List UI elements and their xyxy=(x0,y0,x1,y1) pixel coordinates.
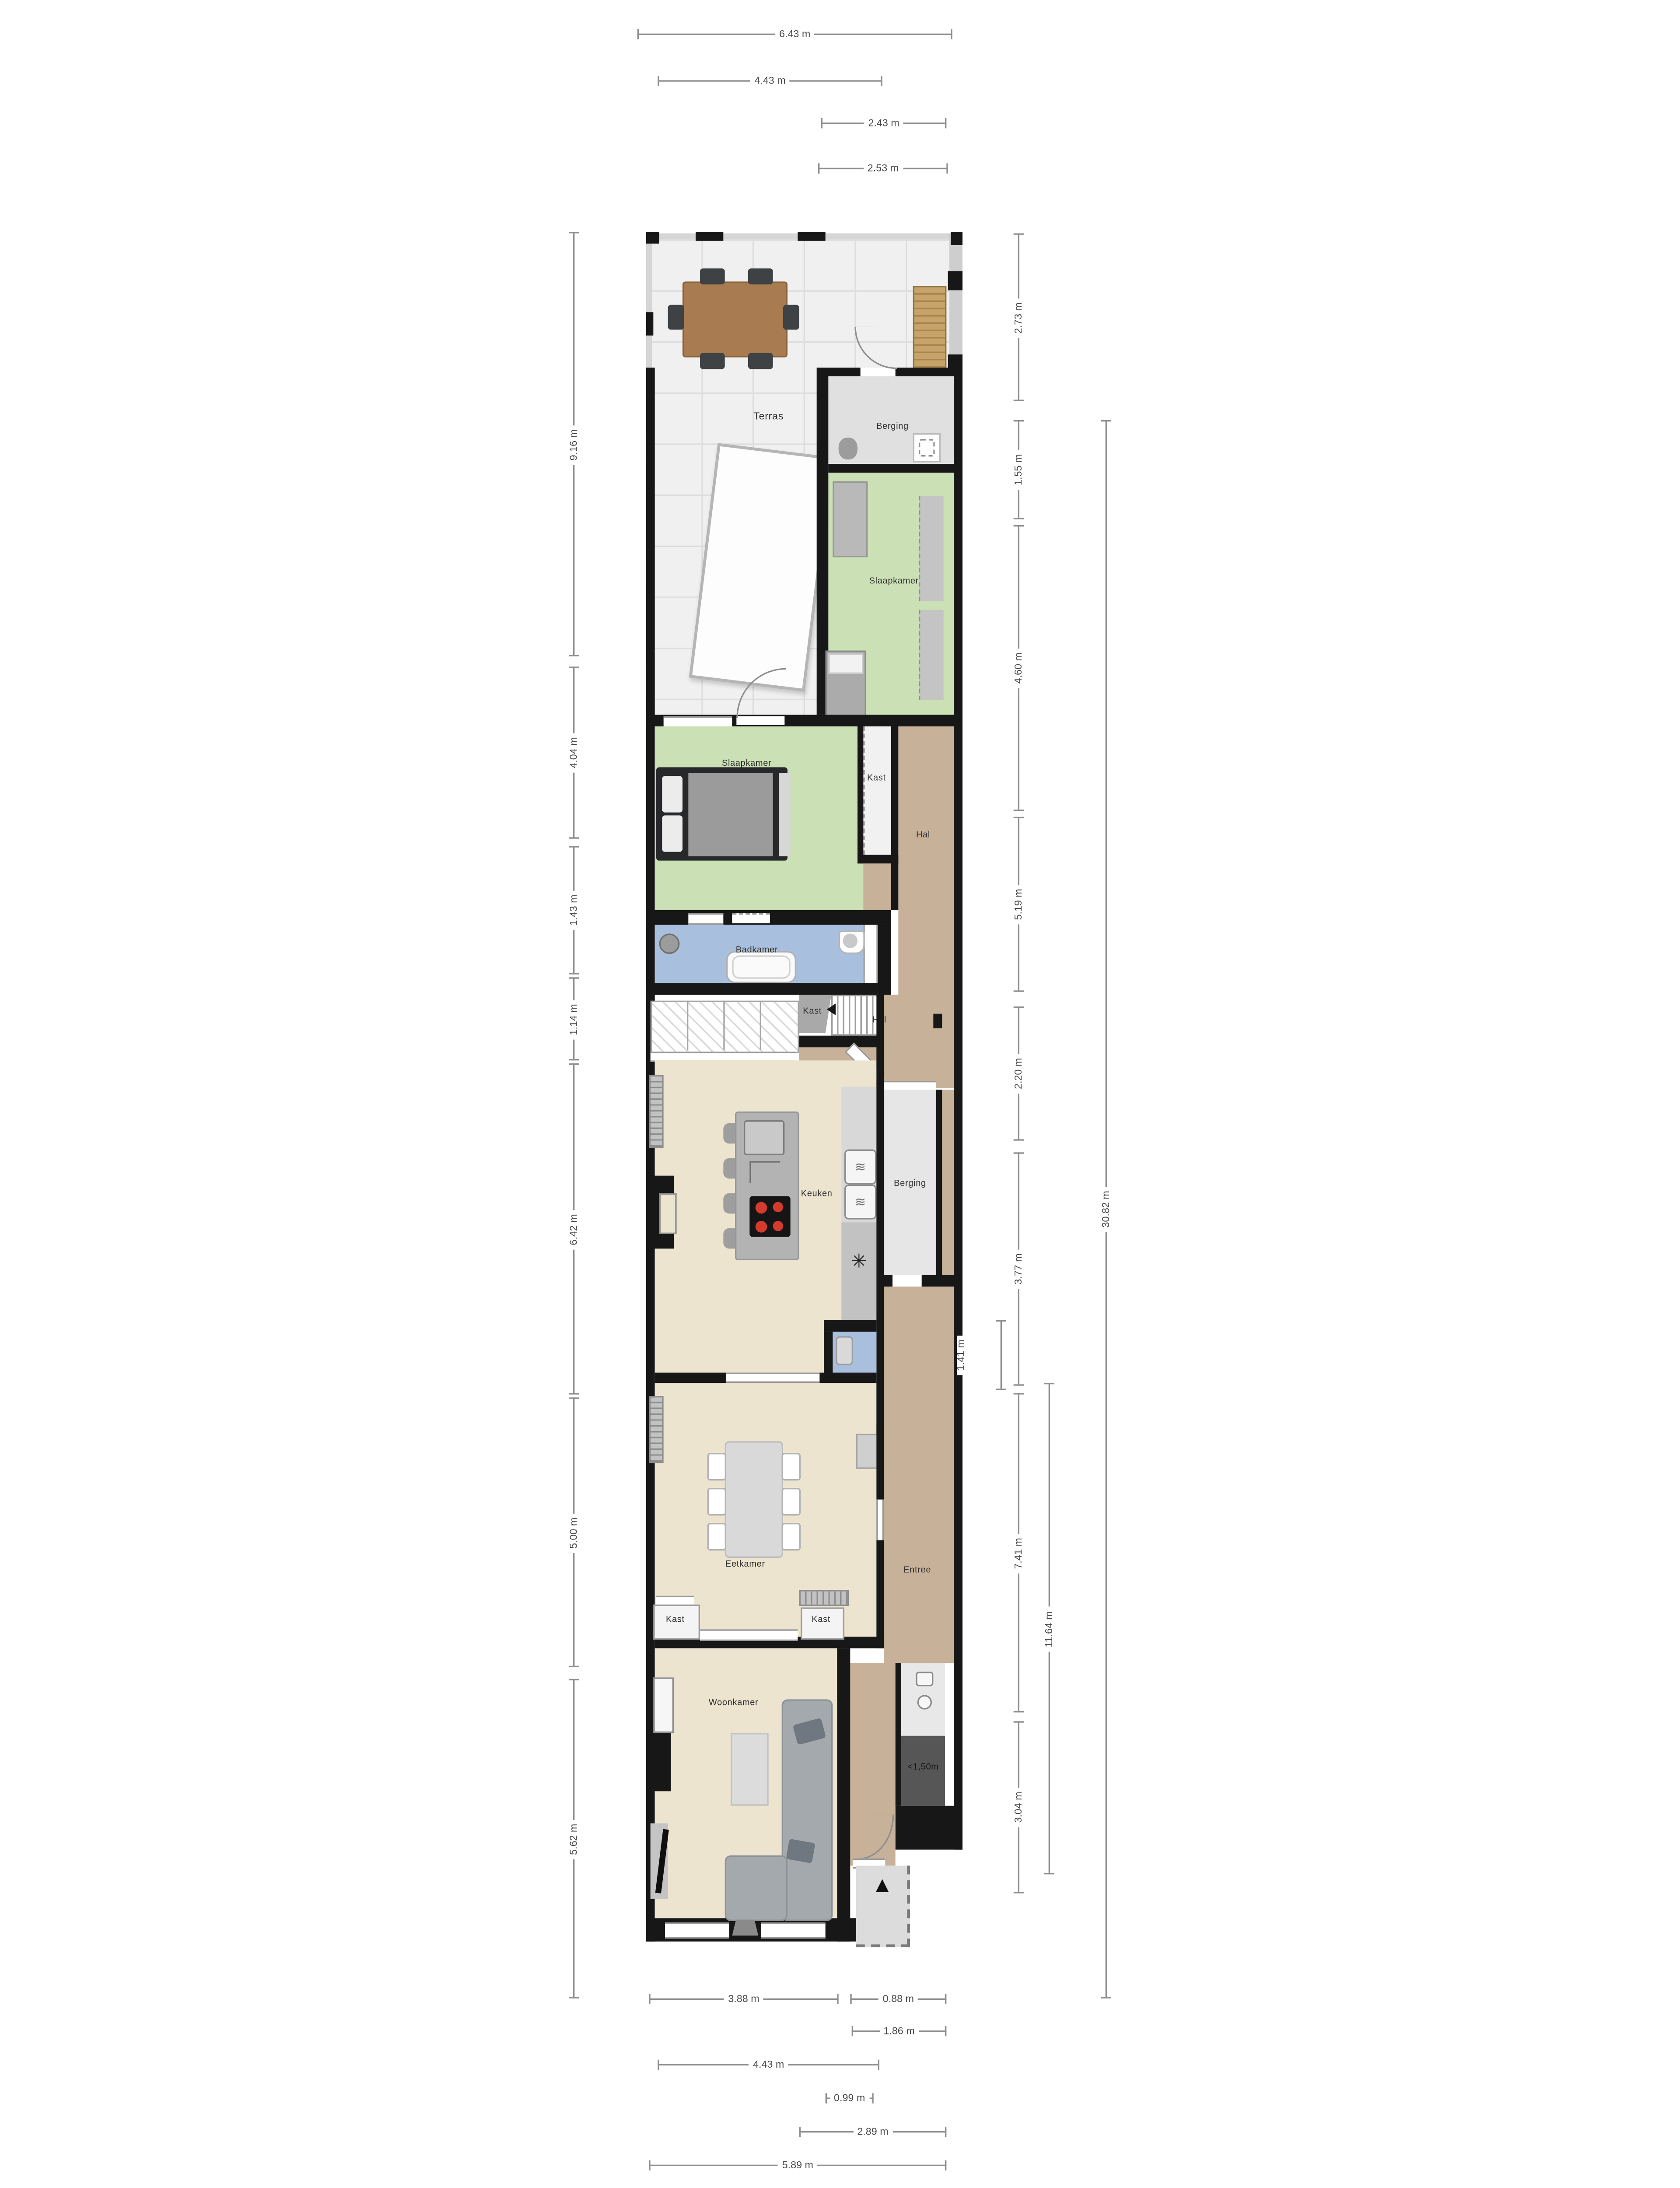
fence-post xyxy=(646,312,654,335)
island-stool xyxy=(723,1193,735,1214)
wall-right-outer xyxy=(954,368,962,1850)
dim-label: 3.04 m xyxy=(1014,1787,1024,1827)
wall-kast-left xyxy=(857,726,863,855)
dim-label: 4.04 m xyxy=(569,733,579,772)
burner xyxy=(773,1202,783,1212)
dim-label: 2.53 m xyxy=(863,163,903,173)
wall-berging-bottom xyxy=(828,464,954,473)
berging-boiler-inner xyxy=(919,439,935,456)
double-bed-bench xyxy=(779,773,791,856)
staircase xyxy=(831,995,884,1035)
fence-post xyxy=(646,232,659,244)
dim-label: 1.43 m xyxy=(569,890,579,930)
wall-berging-mid-right xyxy=(936,1090,942,1275)
closet-divider xyxy=(723,1001,724,1050)
sofa-chaise xyxy=(725,1855,787,1921)
bathtub-inner xyxy=(732,955,790,978)
kast-top-room xyxy=(863,726,891,855)
dining-chair xyxy=(782,1523,801,1550)
dim-bottom-289: 2.89 m xyxy=(799,2131,947,2132)
island-stool xyxy=(723,1158,735,1179)
dim-bottom-589: 5.89 m xyxy=(649,2165,946,2166)
dim-left-114: 1.14 m xyxy=(573,977,574,1060)
dim-right-304: 3.04 m xyxy=(1018,1721,1019,1893)
dim-right-220: 2.20 m xyxy=(1018,1006,1019,1141)
dining-table xyxy=(725,1441,783,1558)
dim-label: 1.41 m xyxy=(956,1335,966,1375)
dining-chair xyxy=(782,1488,801,1515)
fence-post xyxy=(948,271,962,290)
dim-label: 11.64 m xyxy=(1044,1606,1054,1651)
dim-bottom-388: 3.88 m xyxy=(649,1999,838,2000)
wardrobe-grey xyxy=(919,496,944,601)
wall-badkamer-right xyxy=(878,925,891,995)
dim-top-443: 4.43 m xyxy=(658,80,882,81)
floorplan-design: Terras Berging Slaapkamer Kast Hal Slaap… xyxy=(0,0,1680,2188)
dim-label: 6.43 m xyxy=(775,29,815,39)
dim-right-273: 2.73 m xyxy=(1018,233,1019,401)
terras-chair xyxy=(748,268,773,284)
radiator xyxy=(649,1396,663,1463)
wardrobe-grey xyxy=(833,481,868,557)
terras-bench xyxy=(913,286,947,370)
terras-chair xyxy=(748,353,773,369)
wc-sink xyxy=(836,1336,853,1365)
pantry-sink-icon xyxy=(916,1672,933,1686)
island-stool xyxy=(723,1228,735,1249)
dim-label: 3.77 m xyxy=(1014,1249,1024,1289)
shower-icon xyxy=(659,933,680,954)
room-label-hal-top: Hal xyxy=(916,831,930,840)
room-label-kast-right: Kast xyxy=(812,1616,830,1625)
oven-icon: ≋ xyxy=(844,1185,876,1220)
dining-chair xyxy=(782,1453,801,1480)
dim-bottom-186: 1.86 m xyxy=(852,2030,947,2032)
hal-nook xyxy=(863,863,891,910)
dim-bottom-099: 0.99 m xyxy=(826,2097,874,2099)
dim-label: 4.60 m xyxy=(1014,648,1024,688)
low-height-label: <1,50m xyxy=(907,1764,938,1772)
berging-toilet-icon xyxy=(839,438,857,459)
dim-label: 5.89 m xyxy=(778,2160,818,2170)
floorplan-page: Terras Berging Slaapkamer Kast Hal Slaap… xyxy=(0,0,1680,2188)
burner xyxy=(756,1202,767,1214)
wall-wc-top xyxy=(824,1320,876,1332)
dim-label: 30.82 m xyxy=(1101,1186,1111,1232)
toilet-bowl xyxy=(843,933,857,948)
dim-right-1164: 11.64 m xyxy=(1049,1383,1050,1874)
oven-icon: ≋ xyxy=(844,1150,876,1185)
dim-right-377: 3.77 m xyxy=(1018,1152,1019,1385)
wall-under-stairs xyxy=(799,1036,881,1048)
dim-label: 9.16 m xyxy=(569,424,579,464)
side-corridor xyxy=(942,1090,954,1275)
cabinet xyxy=(856,1434,879,1469)
entrance-arrow-icon: ▲ xyxy=(868,1873,897,1899)
dim-label: 0.99 m xyxy=(829,2093,869,2103)
radiator xyxy=(799,1590,849,1606)
wall-hal-left xyxy=(891,726,899,910)
dim-label: 1.86 m xyxy=(879,2026,919,2036)
room-label-eetkamer: Eetkamer xyxy=(725,1561,765,1570)
room-label-berging-top: Berging xyxy=(876,423,909,432)
island-sink xyxy=(744,1120,784,1155)
wall-entree-right-lower xyxy=(896,1663,901,1806)
closet-divider xyxy=(760,1001,761,1050)
dim-label: 2.89 m xyxy=(853,2127,892,2137)
room-label-kast-top: Kast xyxy=(867,775,886,783)
dim-label: 4.43 m xyxy=(750,76,790,86)
room-label-woonkamer: Woonkamer xyxy=(709,1699,758,1708)
dim-left-562: 5.62 m xyxy=(573,1679,574,1999)
radiator xyxy=(649,1075,663,1148)
dim-label: 1.14 m xyxy=(569,999,579,1039)
dim-label: 7.41 m xyxy=(1014,1533,1024,1573)
dim-label: 2.43 m xyxy=(864,118,903,128)
dim-right-519: 5.19 m xyxy=(1018,817,1019,992)
terras-chair xyxy=(668,305,684,330)
dim-left-500: 5.00 m xyxy=(573,1397,574,1667)
room-label-kast-stair: Kast xyxy=(803,1008,822,1017)
dim-left-404: 4.04 m xyxy=(573,666,574,838)
single-bed-pillow xyxy=(828,653,863,674)
chimney-niche xyxy=(659,1193,677,1234)
pantry-sink-icon xyxy=(917,1695,932,1709)
dim-top-243: 2.43 m xyxy=(821,123,947,124)
wall-berging-left xyxy=(817,376,829,473)
dim-bottom-088: 0.88 m xyxy=(850,1999,946,2000)
dim-label: 5.00 m xyxy=(569,1512,579,1552)
dim-top-643: 6.43 m xyxy=(637,34,952,35)
terras-chair xyxy=(783,305,799,330)
front-window xyxy=(761,1922,826,1939)
badkamer-door xyxy=(863,925,878,983)
room-label-entree: Entree xyxy=(903,1567,931,1575)
room-label-kast-left: Kast xyxy=(666,1616,685,1625)
fireplace-niche xyxy=(653,1677,674,1733)
wall-step-bottom-right xyxy=(896,1806,962,1850)
interior-window-band xyxy=(700,1629,798,1641)
double-bed-pillow xyxy=(662,815,682,852)
dim-right-3082: 30.82 m xyxy=(1106,420,1107,1999)
hal-door-jamb xyxy=(933,1014,942,1028)
dim-label: 0.88 m xyxy=(878,1994,918,2004)
burner xyxy=(773,1221,783,1231)
room-label-terras: Terras xyxy=(753,412,784,422)
dim-left-916: 9.16 m xyxy=(573,232,574,656)
fridge-icon: ✳ xyxy=(846,1248,872,1275)
double-bed-pillow xyxy=(662,776,682,812)
dim-label: 2.20 m xyxy=(1014,1054,1024,1094)
dim-label: 5.19 m xyxy=(1014,884,1024,924)
dim-top-253: 2.53 m xyxy=(818,168,948,169)
dim-right-141: 1.41 m xyxy=(1001,1320,1002,1390)
dining-chair xyxy=(707,1453,726,1480)
dim-right-155: 1.55 m xyxy=(1018,420,1019,519)
dim-left-143: 1.43 m xyxy=(573,846,574,974)
wall-kast-bottom xyxy=(857,855,898,863)
interior-window xyxy=(876,1500,884,1540)
fence-post xyxy=(798,232,825,241)
room-label-keuken: Keuken xyxy=(801,1190,833,1199)
slaapkamer-door-gap xyxy=(732,913,770,923)
dim-label: 5.62 m xyxy=(569,1819,579,1858)
dining-chair xyxy=(707,1488,726,1515)
stairs-arrow-icon xyxy=(827,1003,836,1015)
wardrobe-grey xyxy=(919,610,944,700)
sliding-door xyxy=(726,1373,819,1383)
double-bed-blanket xyxy=(688,773,773,856)
coffee-table xyxy=(731,1733,769,1806)
wall-badkamer-bottom xyxy=(646,983,878,995)
terras-chair xyxy=(700,353,725,369)
terras-dining-table xyxy=(682,281,787,357)
closet-divider xyxy=(687,1001,688,1050)
fence-post xyxy=(696,232,723,241)
terras-chair xyxy=(700,268,725,284)
wall-woonkamer-right xyxy=(837,1648,850,1942)
dim-label: 6.42 m xyxy=(569,1209,579,1249)
dim-label: 2.73 m xyxy=(1014,297,1024,337)
room-label-berging-mid: Berging xyxy=(894,1180,926,1189)
island-stool xyxy=(723,1123,735,1144)
island-faucet-icon xyxy=(749,1161,780,1183)
berging-mid-door-gap xyxy=(892,1275,922,1287)
slaapkamer-window xyxy=(688,913,723,925)
wall-keuken-berging xyxy=(876,995,884,1383)
dim-right-460: 4.60 m xyxy=(1018,525,1019,811)
fence-post xyxy=(951,232,962,245)
cooktop xyxy=(749,1196,790,1237)
dim-label: 4.43 m xyxy=(749,2060,788,2070)
dim-left-642: 6.42 m xyxy=(573,1063,574,1395)
fireplace xyxy=(651,1733,671,1791)
dim-label: 3.88 m xyxy=(724,1994,763,2004)
dim-right-741: 7.41 m xyxy=(1018,1393,1019,1712)
room-entree xyxy=(884,1287,954,1663)
bay-pier xyxy=(732,1920,758,1936)
dim-bottom-443: 4.43 m xyxy=(658,2064,879,2065)
burner xyxy=(756,1221,767,1233)
room-label-badkamer: Badkamer xyxy=(736,947,778,955)
dining-chair xyxy=(707,1523,726,1550)
front-window xyxy=(665,1922,729,1939)
berging-door-gap xyxy=(861,368,896,376)
room-label-slaapkamer-top: Slaapkamer xyxy=(869,578,919,586)
room-hal-mid2 xyxy=(881,995,954,1050)
dim-label: 1.55 m xyxy=(1014,450,1024,490)
